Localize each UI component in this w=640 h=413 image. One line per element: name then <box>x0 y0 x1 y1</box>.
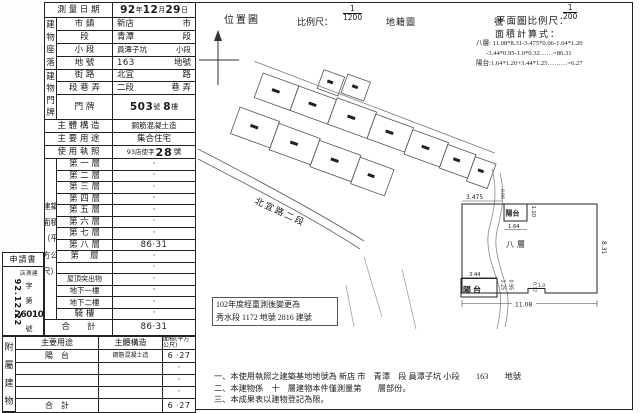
attached-empty-area: · <box>163 363 195 375</box>
minor-boundary-lines <box>346 257 416 329</box>
area-total-label: 合 計 <box>45 320 113 335</box>
attached-header-structure: 主體構造 <box>99 337 163 350</box>
doorplate-value: 503號8樓 <box>113 95 195 120</box>
license-value: 93店使字28號 <box>113 146 195 159</box>
survey-date-value: 92年12月29日 <box>113 3 195 18</box>
floor-label: 第 層 <box>57 251 113 263</box>
floor-value: · <box>113 205 195 217</box>
attached-empty-use <box>16 387 99 399</box>
attached-empty-area: · <box>163 375 195 387</box>
section-value: 青潭段 <box>113 31 195 44</box>
application-title: 申請書 <box>3 253 43 267</box>
dim-balcony-bottom-w: 3.44 <box>469 272 481 278</box>
survey-month: 12 <box>143 5 159 16</box>
floor-value: · <box>113 228 195 240</box>
dim-step-w: 1.0 <box>538 283 545 289</box>
dim-top: 3.475 <box>466 194 483 201</box>
subsection-label: 小 段 <box>57 44 113 57</box>
survey-day: 29 <box>165 5 181 16</box>
attached-empty-structure <box>99 363 163 375</box>
floor-label: 第 四 層 <box>57 194 113 206</box>
location-group-label: 建物座落 <box>45 18 57 70</box>
survey-year: 92 <box>120 5 136 16</box>
structure-value: 鋼筋混凝土造 <box>113 120 195 133</box>
dim-balcony-top-w: 1.64 <box>508 224 520 230</box>
floor-label: 第 六 層 <box>57 217 113 229</box>
lot-number-label: 地 號 <box>57 57 113 70</box>
doorplate-group-label: 建物門牌 <box>45 70 57 120</box>
basement1-value: · <box>113 286 195 298</box>
attached-empty-structure <box>99 375 163 387</box>
street-value: 北宜路 <box>113 70 195 82</box>
basement2-value: · <box>113 297 195 309</box>
floor-value: · <box>113 251 195 263</box>
attached-header-area: 面積(平方公尺) <box>163 337 195 350</box>
structure-label: 主 體 構 造 <box>45 120 113 133</box>
attached-empty-use <box>16 363 99 375</box>
floor-value: · <box>113 171 195 183</box>
balcony-bottom-label: 陽台 <box>463 285 483 295</box>
doorplate-label: 門 牌 <box>57 95 113 120</box>
application-number: 26010 <box>15 310 44 320</box>
balcony-structure: 鋼筋混凝土造 <box>99 350 163 363</box>
city-value: 新店市 <box>113 18 195 31</box>
city-label: 市 鎮 <box>57 18 113 31</box>
note-3: 三、本成果表以建物登記為限。 <box>214 394 628 406</box>
street-label: 街 路 <box>57 70 113 82</box>
survey-date-label: 測 量 日 期 <box>45 3 113 18</box>
section-label: 段 <box>57 31 113 44</box>
dim-bottom: 11.08 <box>515 302 532 309</box>
floor-label <box>57 263 113 275</box>
application-office: 店測建 <box>20 269 38 277</box>
note-2: 二、本建物係 十 層建物本件僅測量第 層部份。 <box>214 383 628 395</box>
floor-label-8: 第 八 層 <box>57 240 113 252</box>
floor-value: · <box>113 263 195 275</box>
floor-label: 第 二 層 <box>57 171 113 183</box>
floor-8-area: 86·31 <box>113 240 195 252</box>
use-label: 主 要 用 途 <box>45 133 113 146</box>
lane-value: 二段巷 弄 <box>113 82 195 95</box>
floor-label: 第 三 層 <box>57 182 113 194</box>
attached-empty-area: · <box>163 387 195 399</box>
dim-notch: 0.06 <box>499 189 505 199</box>
floor-area-side-label: 建築面積（平方公尺） <box>45 159 57 320</box>
road-label: 北宜路二段 <box>253 195 308 229</box>
floor-value: · <box>113 217 195 229</box>
dim-right: 8.31 <box>600 241 607 255</box>
use-value: 集合住宅 <box>113 133 195 146</box>
building-survey-table: 測 量 日 期 92年12月29日 建物座落 市 鎮 新店市 段 青潭段 小 段… <box>44 2 196 336</box>
application-box: 申請書 92.12.22 店測建 字 第 26010 號 <box>2 252 44 336</box>
floor-value: · <box>113 159 195 171</box>
note-1: 一、本使用執照之建築基地地號為 新店 市 青潭 段 員潭子坑 小段 163 地號 <box>214 371 628 383</box>
resurvey-remark-box: 102年度經重測後變更為 秀水段 1172 地號 2816 建號 <box>212 297 338 326</box>
license-label: 使 用 執 照 <box>45 146 113 159</box>
plan-scale-fraction: 1200 <box>563 4 577 22</box>
balcony-area: 6 ·27 <box>163 350 195 363</box>
road-lines <box>198 149 364 249</box>
basement2-label: 地下二樓 <box>57 297 113 309</box>
attached-building-table: 附屬建物 主要用途 主體構造 面積(平方公尺) 陽 台 鋼筋混凝土造 6 ·27… <box>2 336 196 413</box>
attached-total-area: 6 ·27 <box>163 399 195 412</box>
floor-value: · <box>113 182 195 194</box>
roof-projection-label: 屋頂突出物 <box>57 274 113 286</box>
area-total-value: 86·31 <box>113 320 195 335</box>
footer-notes: 一、本使用執照之建築基地地號為 新店 市 青潭 段 員潭子坑 小段 163 地號… <box>214 371 628 406</box>
dim-step-d: 0.32 <box>532 282 538 292</box>
lot-number-value: 163地號 <box>113 57 195 70</box>
floor-label: 第 五 層 <box>57 205 113 217</box>
dim-balcony-bottom-d: 1.25 <box>500 280 506 291</box>
attached-total-label: 合 計 <box>16 399 99 412</box>
attached-empty-structure <box>99 387 163 399</box>
room-label: 八層 <box>506 240 528 249</box>
balcony-use: 陽 台 <box>16 350 99 363</box>
basement1-label: 地下一樓 <box>57 286 113 298</box>
floor-value: · <box>113 194 195 206</box>
lane-label: 段 巷 弄 <box>57 82 113 95</box>
floor-label: 第 一 層 <box>57 159 113 171</box>
dim-balcony-top-d: 1.20 <box>530 206 536 218</box>
north-arrow-icon <box>199 30 239 85</box>
roof-projection-value: · <box>113 274 195 286</box>
floor-outline <box>462 204 597 293</box>
remark-line-1: 102年度經重測後變更為 <box>216 299 334 312</box>
arcade-label: 騎 樓 <box>57 309 113 321</box>
floor-label: 第 七 層 <box>57 228 113 240</box>
floor-plan: 3.475 11.08 8.31 1.64 1.20 0.06 3.44 1.2… <box>436 183 633 323</box>
map-and-plan-panel: 位置圖 比例尺： 11200 地籍圖 號 平面圖比例尺： 1200 面積計算式：… <box>196 2 633 410</box>
remark-line-2: 秀水段 1172 地號 2816 建號 <box>216 312 334 325</box>
subsection-value: 員潭子坑小段 <box>113 44 195 57</box>
arcade-value: · <box>113 309 195 321</box>
attached-empty-use <box>16 375 99 387</box>
attached-header-use: 主要用途 <box>16 337 99 350</box>
balcony-top-label: 陽台 <box>506 209 520 218</box>
dim-inset: 0.95 <box>508 280 514 291</box>
attached-side-label: 附屬建物 <box>3 337 16 412</box>
